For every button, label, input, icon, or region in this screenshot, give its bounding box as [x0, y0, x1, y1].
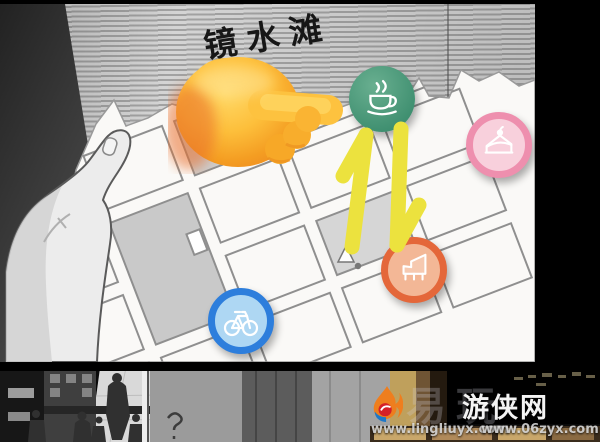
game-screen: 镜水滩: [0, 0, 600, 442]
watermark-site-logo: 游侠网: [462, 386, 549, 425]
faint-sign-marks: [512, 371, 598, 387]
next-panel-preview: 易玩 游侠网 www.lingliuyx.com www.06zyx.com: [0, 368, 600, 442]
cafe-pin[interactable]: [349, 66, 415, 132]
coffee-cup-icon: [361, 78, 403, 120]
grand-piano-icon: [395, 251, 433, 289]
map-panel: 镜水滩: [0, 4, 535, 362]
bicycle-pin[interactable]: [208, 288, 274, 354]
cake-pin[interactable]: [466, 112, 532, 178]
cake-slice-icon: [480, 126, 518, 164]
flame-logo-icon: [371, 384, 403, 426]
piano-pin[interactable]: [381, 237, 447, 303]
watermark-url-right: www.06zyx.com: [481, 422, 599, 437]
bicycle-icon: [221, 301, 261, 341]
